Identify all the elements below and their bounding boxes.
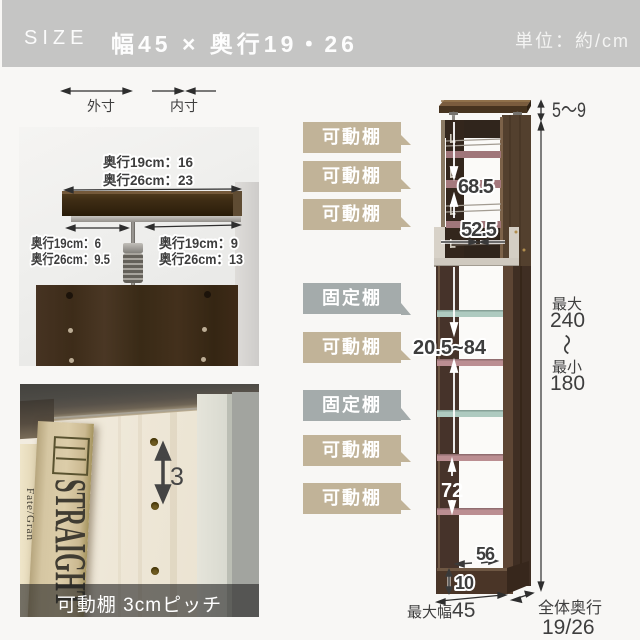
- svg-text:奥行26cm：9.5: 奥行26cm：9.5: [31, 251, 110, 267]
- svg-text:奥行19cm：9: 奥行19cm：9: [159, 235, 238, 251]
- svg-text:240: 240: [550, 309, 585, 332]
- svg-text:19/26: 19/26: [542, 616, 595, 639]
- svg-text:5〜9: 5〜9: [552, 99, 586, 122]
- svg-text:20.5~84: 20.5~84: [413, 337, 487, 359]
- svg-text:奥行26cm：13: 奥行26cm：13: [159, 251, 243, 267]
- svg-text:72: 72: [441, 480, 463, 502]
- svg-text:68.5: 68.5: [458, 176, 494, 198]
- svg-text:奥行19cm：16: 奥行19cm：16: [103, 154, 193, 170]
- svg-text:外寸: 外寸: [87, 98, 115, 114]
- svg-text:52.5: 52.5: [461, 219, 497, 241]
- svg-text:〜: 〜: [554, 334, 577, 355]
- svg-text:180: 180: [550, 372, 585, 395]
- svg-text:内寸: 内寸: [170, 98, 198, 114]
- svg-text:奥行26cm：23: 奥行26cm：23: [103, 172, 193, 188]
- svg-text:10: 10: [455, 573, 474, 593]
- svg-text:全体奥行: 全体奥行: [538, 599, 602, 617]
- svg-text:Fate/Gran: Fate/Gran: [24, 488, 36, 541]
- svg-text:奥行19cm：6: 奥行19cm：6: [31, 235, 101, 251]
- svg-text:56: 56: [476, 544, 495, 564]
- svg-text:3: 3: [170, 463, 184, 491]
